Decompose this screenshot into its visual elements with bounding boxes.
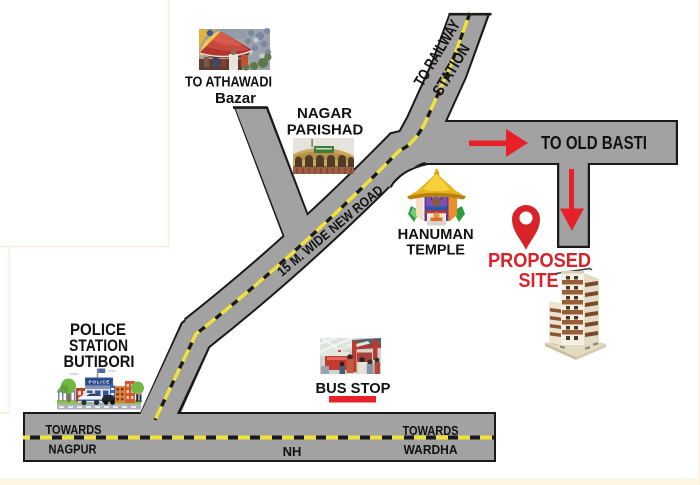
svg-text:TEMPLE: TEMPLE bbox=[406, 243, 465, 259]
svg-text:Bazar: Bazar bbox=[215, 91, 256, 107]
svg-text:TOWARDS: TOWARDS bbox=[46, 422, 102, 437]
svg-text:PROPOSED: PROPOSED bbox=[488, 250, 591, 272]
svg-text:SITE: SITE bbox=[519, 270, 559, 292]
svg-text:PARISHAD: PARISHAD bbox=[287, 122, 364, 139]
svg-text:BUTIBORI: BUTIBORI bbox=[64, 353, 135, 371]
svg-text:NH: NH bbox=[283, 444, 302, 459]
svg-text:BUS STOP: BUS STOP bbox=[316, 380, 391, 397]
svg-text:TOWARDS: TOWARDS bbox=[403, 423, 459, 438]
svg-text:HANUMAN: HANUMAN bbox=[398, 227, 474, 243]
svg-text:WARDHA: WARDHA bbox=[404, 442, 459, 457]
svg-text:TO OLD BASTI: TO OLD BASTI bbox=[541, 133, 647, 153]
svg-text:TO ATHAWADI: TO ATHAWADI bbox=[185, 75, 272, 91]
svg-text:POLICE: POLICE bbox=[89, 380, 110, 385]
svg-text:NAGAR: NAGAR bbox=[297, 105, 352, 122]
svg-text:NAGPUR: NAGPUR bbox=[49, 442, 98, 457]
